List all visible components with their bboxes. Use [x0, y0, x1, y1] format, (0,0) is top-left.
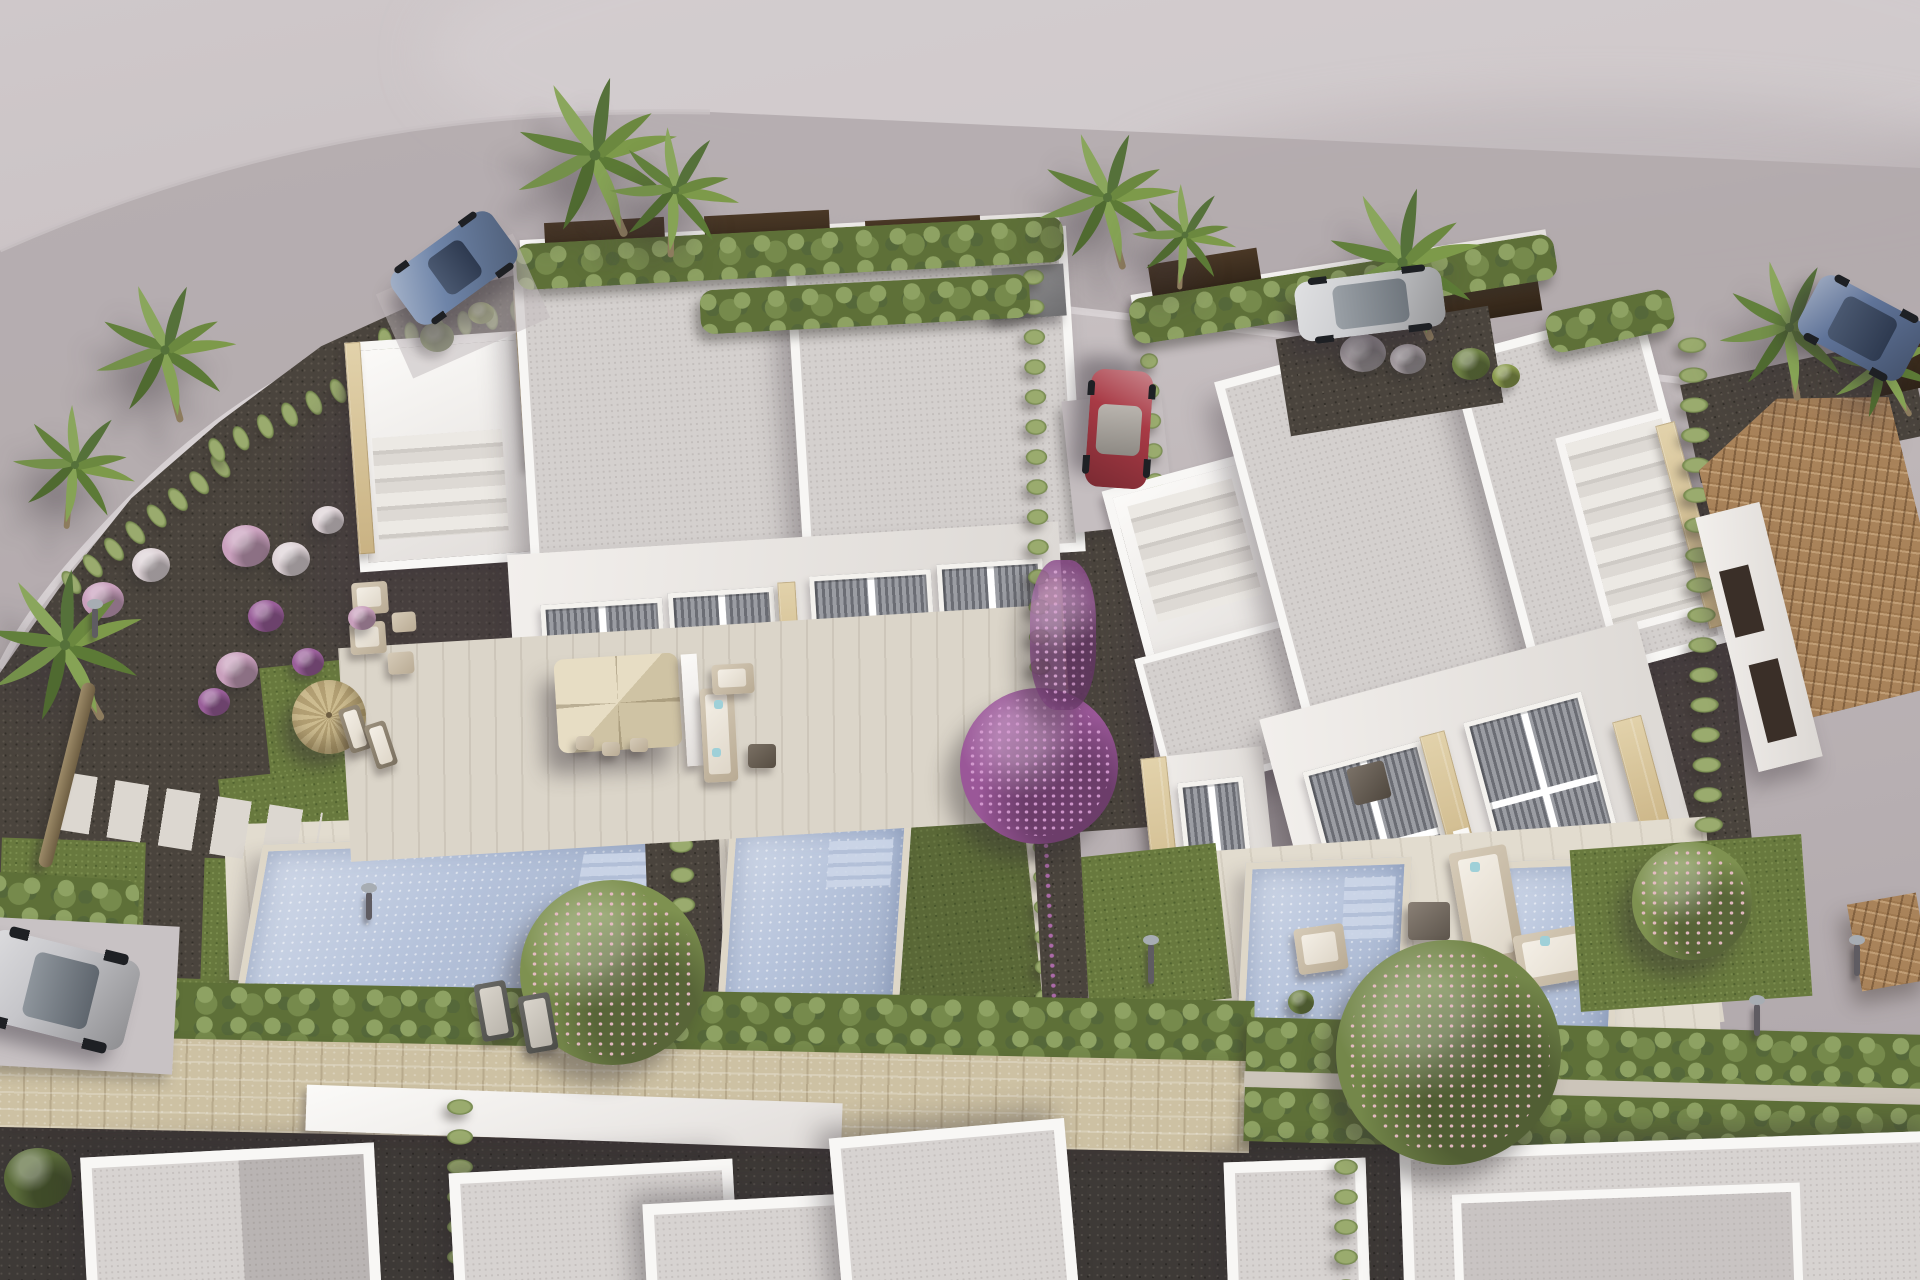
garden-lamp	[366, 892, 372, 920]
pool-steps	[1341, 877, 1396, 941]
garden-lamp	[1754, 1004, 1760, 1036]
side-table	[1408, 902, 1450, 940]
aqua-cushion	[712, 748, 721, 757]
umbrella-pole	[326, 712, 332, 718]
aqua-cushion	[714, 700, 723, 709]
shrub	[1492, 364, 1520, 388]
foreground-roof	[80, 1142, 382, 1280]
flower-bush	[312, 506, 344, 534]
foreground-hedge	[1326, 1152, 1366, 1280]
outdoor-shower	[1148, 944, 1154, 984]
palm-tree	[0, 560, 150, 730]
armchair	[711, 663, 755, 695]
palm-tree	[600, 115, 750, 265]
armchair	[1293, 923, 1349, 976]
flower-bush	[272, 542, 310, 576]
blossom-tree	[1336, 940, 1561, 1165]
roof-stairs	[1127, 478, 1262, 622]
flower-bush	[248, 600, 284, 632]
aqua-cushion	[1470, 862, 1480, 872]
dining-chair	[630, 738, 648, 752]
palm-tree	[1120, 170, 1250, 300]
grass-ball-bush	[1390, 344, 1426, 374]
flower-bush	[292, 648, 324, 676]
aqua-cushion	[1540, 936, 1550, 946]
roadside-bush	[4, 1148, 72, 1208]
cantilever-parasol	[553, 652, 683, 753]
blossom-tree	[1632, 842, 1752, 960]
coffee-table	[391, 611, 416, 633]
shrub	[1452, 348, 1490, 380]
roof-stairs	[372, 429, 509, 540]
flower-bush	[348, 606, 376, 630]
garden-lamp	[92, 608, 98, 638]
render-canvas	[0, 0, 1920, 1280]
bougainvillea-tree	[960, 688, 1118, 844]
inner-parapet	[1452, 1183, 1804, 1280]
dining-chair	[576, 736, 594, 750]
bougainvillea-climber	[1030, 560, 1096, 710]
dark-window	[1719, 564, 1765, 637]
side-table	[748, 744, 776, 768]
palm-tree	[0, 390, 150, 540]
dark-window	[1749, 658, 1797, 743]
foreground-roof	[829, 1118, 1079, 1280]
lawn-right-villa	[1074, 843, 1232, 1013]
flower-bush	[198, 688, 230, 716]
dining-chair	[602, 742, 620, 756]
flower-bush	[222, 525, 270, 567]
garden-lamp	[1854, 944, 1860, 976]
potted-plant	[1288, 990, 1314, 1014]
pouf	[387, 651, 414, 675]
red-hatchback-car	[1084, 368, 1154, 490]
flower-bush	[216, 652, 258, 688]
pool-steps	[826, 839, 893, 888]
roof-shade	[238, 1154, 370, 1280]
